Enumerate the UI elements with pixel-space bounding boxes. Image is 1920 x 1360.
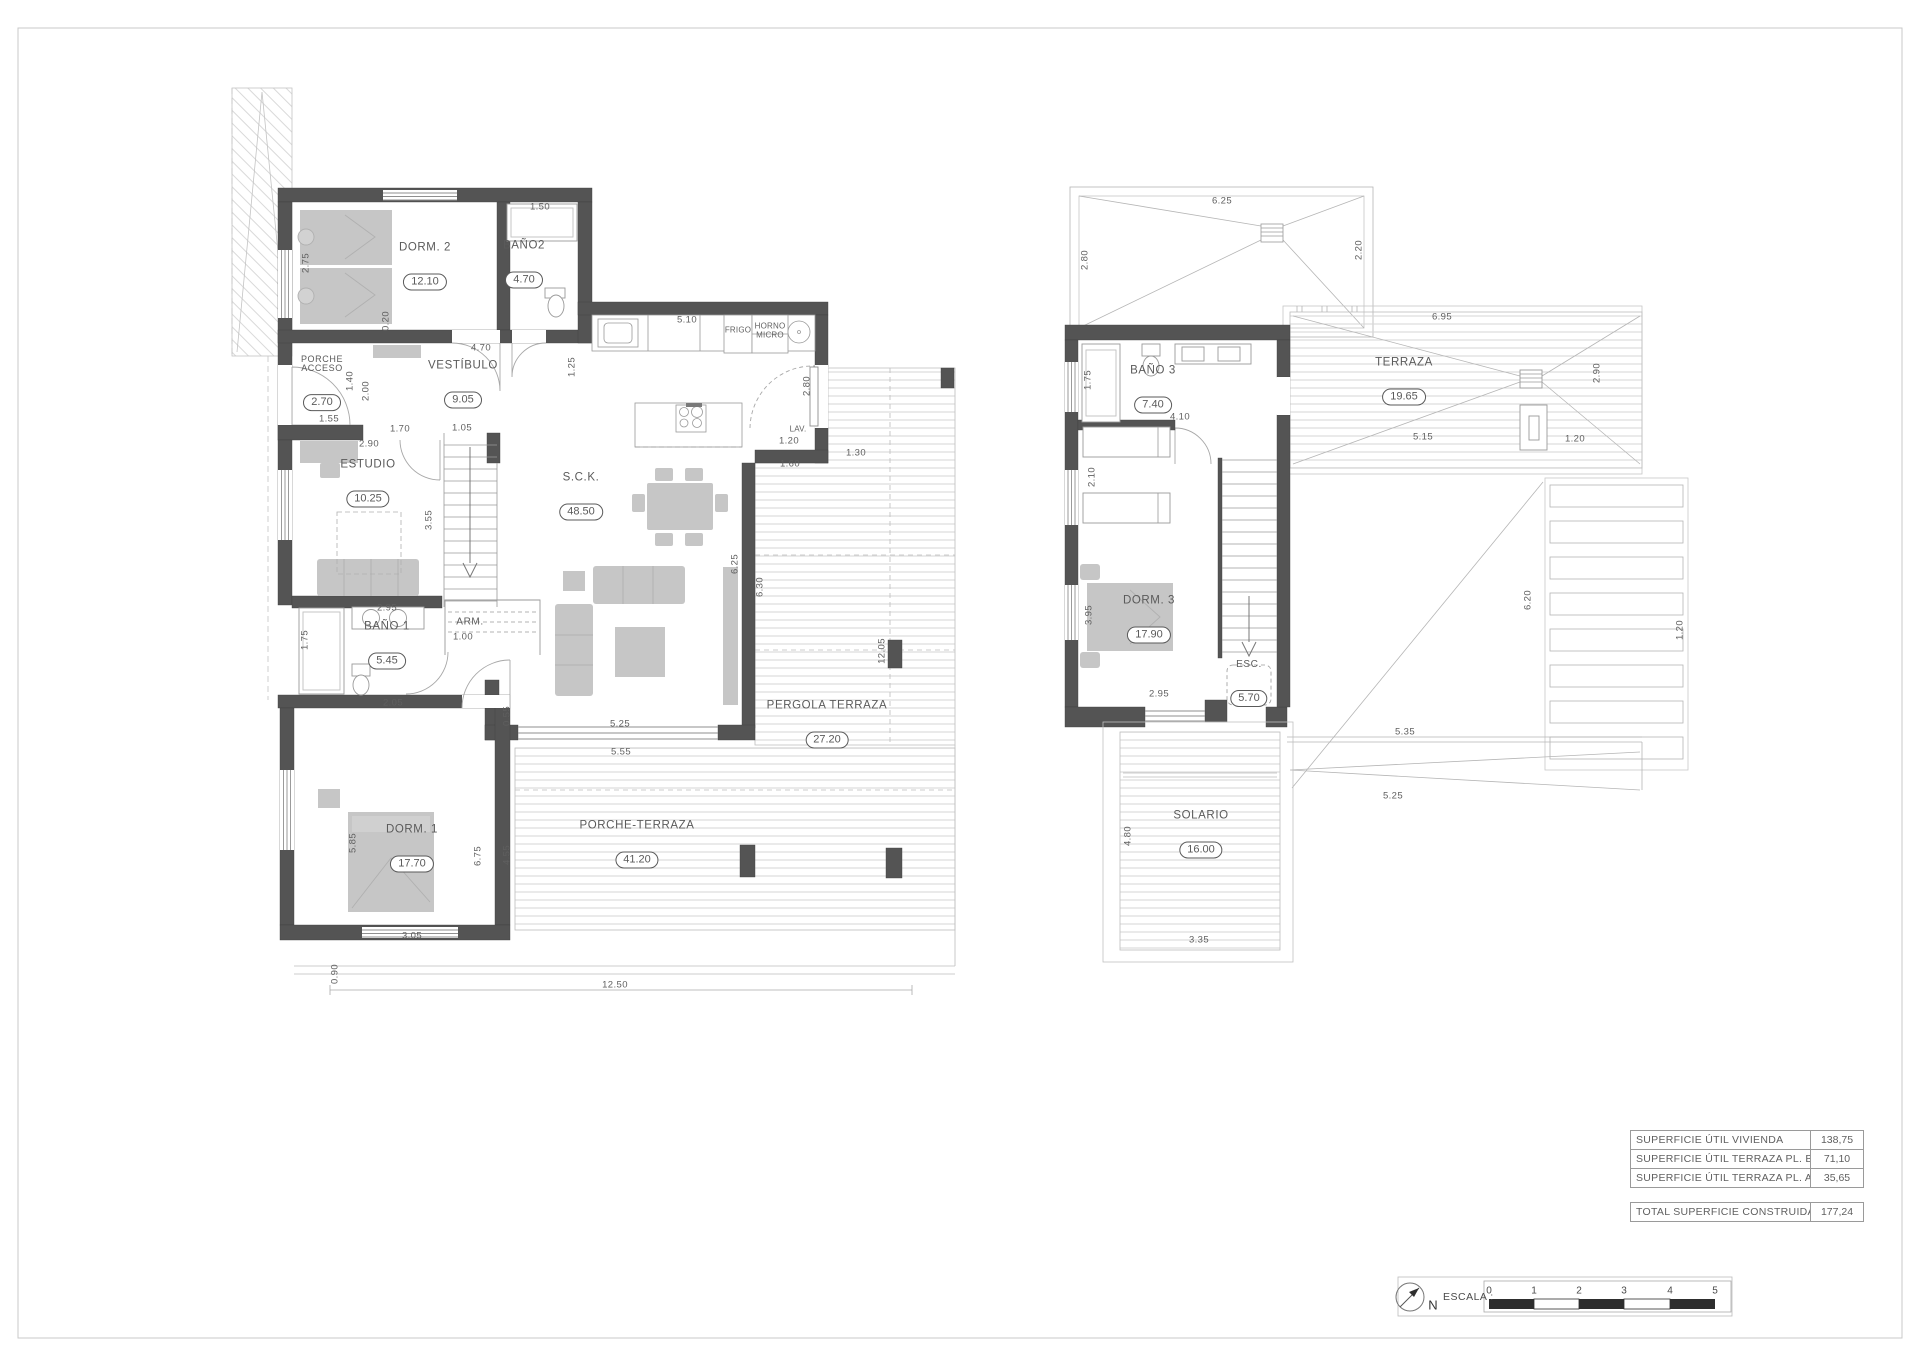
room-name: BAÑO 1 (364, 621, 410, 633)
room-area: 17.70 (390, 856, 434, 873)
room-label-sck: S.C.K. 48.50 (559, 472, 603, 521)
scale-tick: 4 (1667, 1286, 1673, 1297)
room-area: 12.10 (403, 274, 447, 291)
room-label-solario: SOLARIO 16.00 (1173, 810, 1228, 859)
room-name: DORM. 1 (386, 824, 438, 836)
room-area: 10.25 (346, 491, 390, 508)
room-label-pergola-terraza: PERGOLA TERRAZA 27.20 (767, 700, 888, 749)
room-area: 4.70 (505, 272, 542, 289)
room-area: 7.40 (1134, 397, 1171, 414)
table-row: SUPERFICIE ÚTIL TERRAZA PL. BAJA 71,10 (1631, 1149, 1863, 1168)
room-name: BAÑO 3 (1130, 365, 1176, 377)
room-label-arm: ARM. (456, 617, 483, 628)
room-area: 16.00 (1179, 842, 1223, 859)
room-label-porche-terraza: PORCHE-TERRAZA 41.20 (579, 820, 694, 869)
table-row-value: 138,75 (1810, 1131, 1863, 1149)
room-label-bano2: BAÑO2 4.70 (503, 240, 545, 289)
room-name: DORM. 3 (1123, 595, 1175, 607)
room-name: PERGOLA TERRAZA (767, 700, 888, 712)
scale-tick: 5 (1712, 1286, 1718, 1297)
room-name: BAÑO2 (503, 240, 545, 252)
north-compass-icon (1396, 1283, 1424, 1311)
floor-plan-sheet: 1.502.750.204.701.255.102.80LAV.1.201.60… (0, 0, 1920, 1360)
room-name: TERRAZA (1375, 357, 1433, 369)
room-name: ESC. (1230, 659, 1267, 670)
room-area: 2.70 (303, 394, 340, 411)
table-row: SUPERFICIE ÚTIL VIVIENDA 138,75 (1631, 1131, 1863, 1149)
room-area: 27.20 (805, 732, 849, 749)
scale-tick: 2 (1576, 1286, 1582, 1297)
room-area: 41.20 (615, 852, 659, 869)
room-label-bano-3: BAÑO 3 7.40 (1130, 365, 1176, 414)
scale-tick: 3 (1621, 1286, 1627, 1297)
scale-tick: 1 (1531, 1286, 1537, 1297)
room-label-dorm-3: DORM. 3 17.90 (1123, 595, 1175, 644)
surface-areas-table: SUPERFICIE ÚTIL VIVIENDA 138,75 SUPERFIC… (1630, 1130, 1864, 1188)
table-row-label: SUPERFICIE ÚTIL TERRAZA PL. ALTA (1631, 1169, 1810, 1187)
upper-floor-plan (1065, 187, 1688, 962)
room-name: ARM. (456, 617, 483, 628)
room-area: 17.90 (1127, 627, 1171, 644)
total-surface-table: TOTAL SUPERFICIE CONSTRUIDA 177,24 (1630, 1202, 1864, 1222)
room-name: VESTÍBULO (428, 360, 498, 372)
room-label-estudio: ESTUDIO 10.25 (340, 459, 395, 508)
room-label-bano-1: BAÑO 1 5.45 (364, 621, 410, 670)
room-label-dorm-2: DORM. 2 12.10 (399, 242, 451, 291)
room-label-porche-acceso: PORCHE ACCESO 2.70 (293, 355, 351, 411)
room-label-esc: ESC. 5.70 (1230, 659, 1267, 707)
room-name: PORCHE ACCESO (293, 355, 351, 374)
room-label-terraza: TERRAZA 19.65 (1375, 357, 1433, 406)
ground-floor-plan (232, 88, 1211, 995)
room-area: 19.65 (1382, 389, 1426, 406)
table-row-value: 71,10 (1810, 1150, 1863, 1168)
table-row-label: TOTAL SUPERFICIE CONSTRUIDA (1631, 1203, 1810, 1221)
north-label: N (1428, 1298, 1437, 1313)
room-area: 48.50 (559, 504, 603, 521)
room-area: 5.45 (368, 653, 405, 670)
table-row-label: SUPERFICIE ÚTIL VIVIENDA (1631, 1131, 1810, 1149)
room-label-vestibulo: VESTÍBULO 9.05 (428, 360, 498, 409)
room-label-dorm-1: DORM. 1 17.70 (386, 824, 438, 873)
table-row: SUPERFICIE ÚTIL TERRAZA PL. ALTA 35,65 (1631, 1168, 1863, 1187)
room-name: DORM. 2 (399, 242, 451, 254)
room-name: SOLARIO (1173, 810, 1228, 822)
scale-tick: 0 (1486, 1286, 1492, 1297)
table-row-value: 35,65 (1810, 1169, 1863, 1187)
table-row: TOTAL SUPERFICIE CONSTRUIDA 177,24 (1631, 1203, 1863, 1221)
room-name: S.C.K. (559, 472, 603, 484)
room-area: 9.05 (444, 392, 481, 409)
room-area: 5.70 (1230, 690, 1267, 707)
room-name: ESTUDIO (340, 459, 395, 471)
room-name: PORCHE-TERRAZA (579, 820, 694, 832)
table-row-value: 177,24 (1810, 1203, 1863, 1221)
table-row-label: SUPERFICIE ÚTIL TERRAZA PL. BAJA (1631, 1150, 1810, 1168)
